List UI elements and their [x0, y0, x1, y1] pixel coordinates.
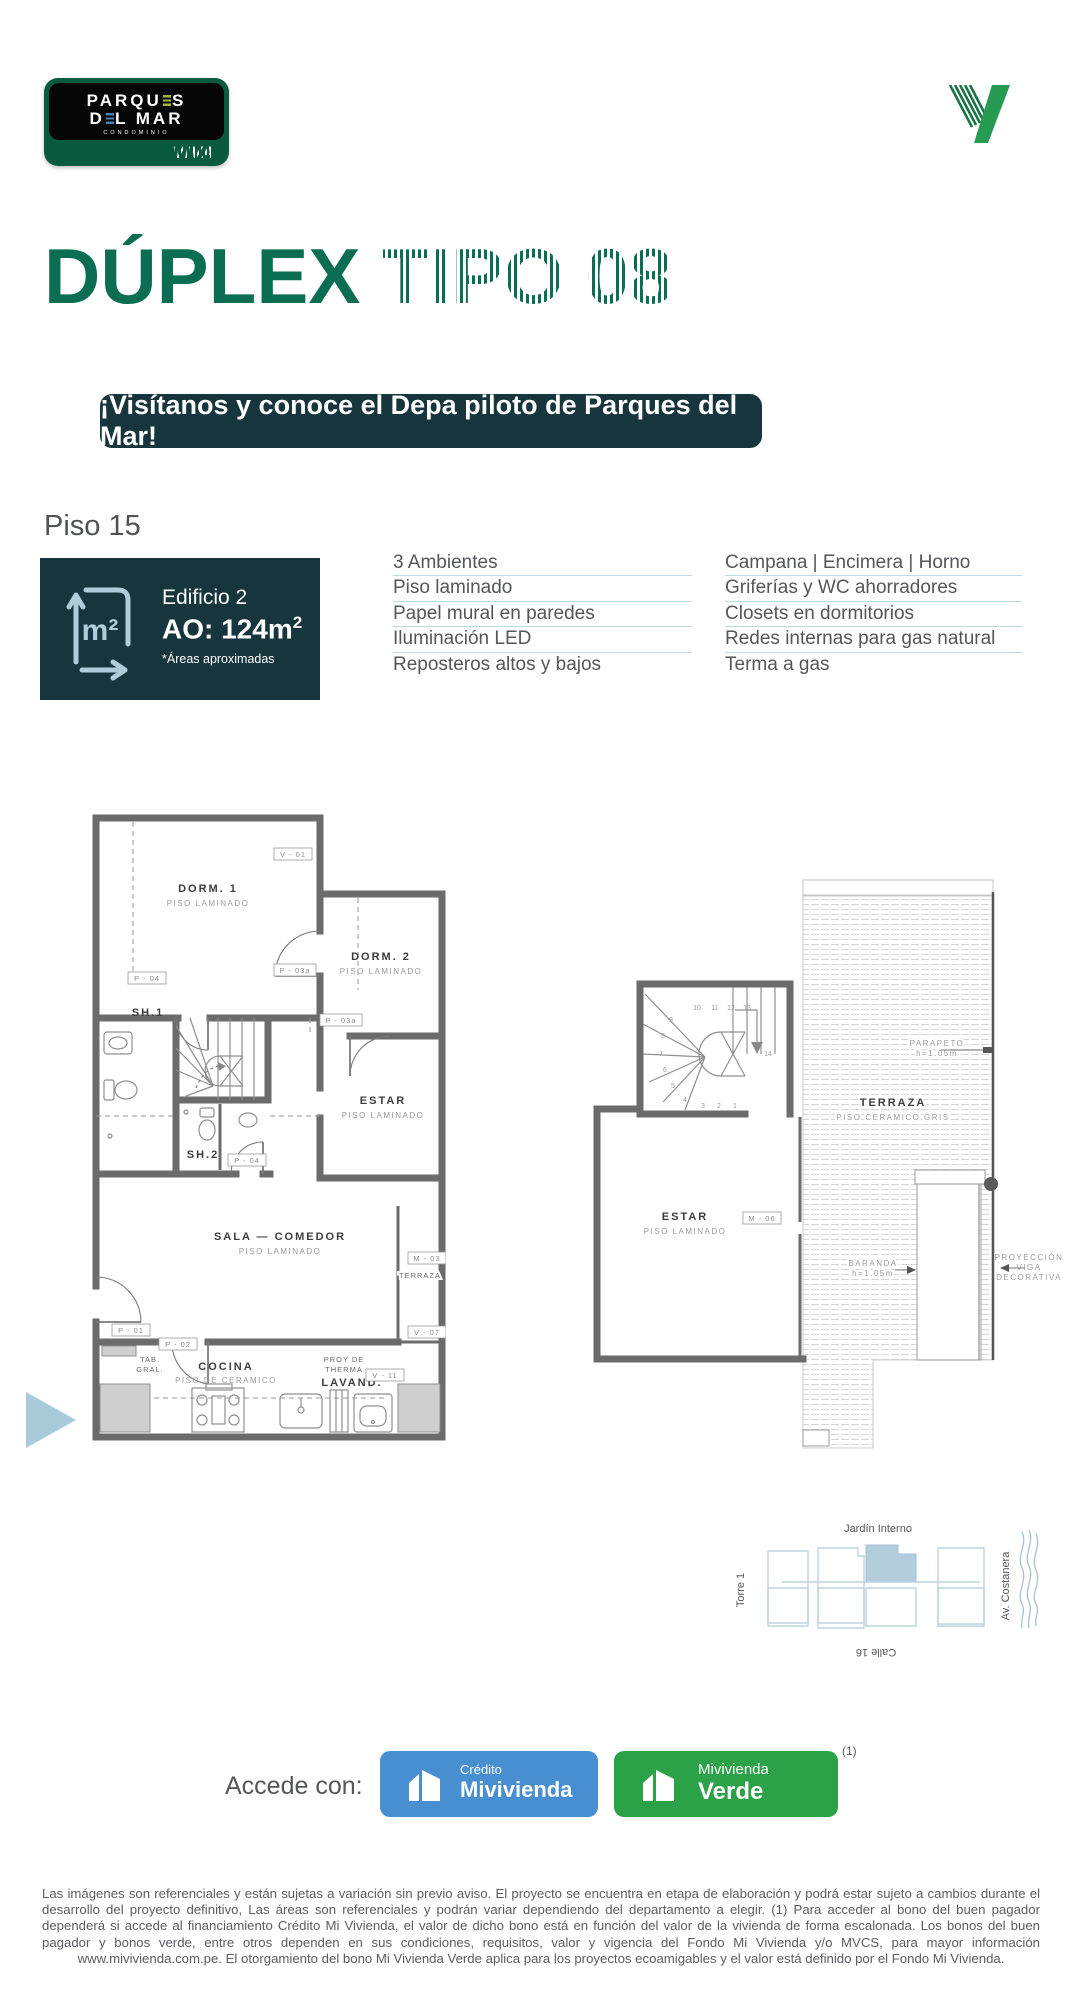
water-waves-icon — [1020, 1530, 1037, 1628]
svg-text:2: 2 — [717, 1103, 721, 1110]
button-label-bottom: Mivivienda — [460, 1777, 572, 1803]
proyeccion-viga-callout: PROYECCIÓN VIGA DECORATIVA — [995, 1253, 1064, 1282]
viva-v-icon — [948, 85, 1012, 143]
note-tablero: TAB. — [140, 1355, 160, 1364]
feature-item: Closets en dormitorios — [725, 602, 1022, 627]
tag-m06: M - 06 — [748, 1214, 775, 1223]
svg-text:P - 04: P - 04 — [234, 1156, 260, 1165]
floor-label: Piso 15 — [44, 510, 141, 543]
page-title: DÚPLEX TIPO 08 — [44, 234, 673, 318]
svg-text:5: 5 — [671, 1083, 675, 1090]
svg-text:6: 6 — [663, 1067, 667, 1074]
logo-condominio: CONDOMINIO — [49, 130, 224, 136]
room-sublabel: PISO LAMINADO — [167, 899, 250, 908]
flyer-page: PARQUS DL MAR CONDOMINIO VIVA DÚPLEX TIP… — [0, 0, 1081, 2001]
features-left: 3 Ambientes Piso laminado Papel mural en… — [393, 551, 692, 678]
svg-text:1: 1 — [733, 1103, 737, 1110]
column-dot — [984, 1177, 998, 1191]
area-note: *Áreas aproximadas — [162, 652, 275, 666]
walls — [597, 984, 803, 1359]
button-label-bottom: Verde — [698, 1778, 763, 1806]
svg-text:V - 07: V - 07 — [414, 1328, 440, 1337]
svg-text:P - 03a: P - 03a — [279, 966, 310, 975]
room-label-sh1: SH.1 — [132, 1007, 164, 1019]
room-label-dorm2: DORM. 2 — [351, 951, 411, 963]
map-label-jardin: Jardín Interno — [844, 1523, 912, 1535]
staircase — [176, 1018, 254, 1100]
svg-text:8: 8 — [661, 1033, 665, 1040]
svg-text:10: 10 — [693, 1005, 701, 1012]
room-label-cocina: COCINA — [198, 1361, 253, 1373]
stylized-e-icon — [106, 113, 115, 124]
m2-area-icon: m² — [66, 578, 138, 682]
building-footprints — [768, 1545, 984, 1628]
title-solid: DÚPLEX — [44, 232, 360, 320]
viva-wordmark: VIVA — [173, 143, 215, 163]
svg-text:BARANDA: BARANDA — [848, 1259, 897, 1268]
map-label-costanera: Av. Costanera — [1000, 1551, 1012, 1621]
svg-text:7: 7 — [659, 1051, 663, 1058]
svg-text:V - 01: V - 01 — [280, 850, 306, 859]
room-sublabel: PISO DE CERAMICO — [175, 1376, 277, 1385]
svg-text:14: 14 — [764, 1051, 772, 1058]
svg-text:GRAL.: GRAL. — [136, 1365, 164, 1374]
visit-banner: ¡Visítanos y conoce el Depa piloto de Pa… — [100, 394, 762, 448]
house-icon — [406, 1765, 448, 1803]
walls — [96, 818, 442, 1437]
room-sublabel: PISO LAMINADO — [239, 1247, 322, 1256]
room-label-terraza-small: TERRAZA — [399, 1271, 441, 1280]
room-label-estar: ESTAR — [662, 1211, 708, 1223]
staircase: 12 34 56 78 910 1112 1314 — [643, 987, 775, 1110]
svg-text:9: 9 — [669, 1017, 673, 1024]
accede-con-label: Accede con: — [225, 1772, 363, 1801]
logo-inner: PARQUS DL MAR CONDOMINIO — [49, 83, 224, 140]
logo-line2: DL MAR — [49, 110, 224, 127]
parques-del-mar-logo: PARQUS DL MAR CONDOMINIO VIVA — [44, 78, 229, 166]
room-sublabel: PISO LAMINADO — [342, 1111, 425, 1120]
feature-item: Redes internas para gas natural — [725, 627, 1022, 652]
feature-item: Reposteros altos y bajos — [393, 653, 692, 678]
svg-text:THERMA: THERMA — [325, 1365, 363, 1374]
room-label-dorm1: DORM. 1 — [178, 883, 238, 895]
svg-text:P - 02: P - 02 — [165, 1340, 191, 1349]
terrace-area — [803, 880, 998, 1448]
highlighted-unit — [866, 1545, 916, 1582]
feature-item: Terma a gas — [725, 653, 1022, 678]
svg-text:13: 13 — [743, 1005, 751, 1012]
map-label-calle16: Calle 16 — [856, 1646, 896, 1658]
svg-text:h=1.05m: h=1.05m — [852, 1269, 894, 1278]
site-location-map: Jardín Interno Torre 1 Av. Costanera Cal… — [560, 1518, 1060, 1763]
svg-text:12: 12 — [727, 1005, 735, 1012]
area-info-box: m² Edificio 2 AO: 124m2 *Áreas aproximad… — [40, 558, 320, 700]
room-sublabel: PISO LAMINADO — [644, 1227, 727, 1236]
room-label-sh2: SH.2 — [187, 1149, 219, 1161]
mivivienda-verde-button[interactable]: Mivivienda Verde — [614, 1751, 838, 1817]
legal-disclaimer: Las imágenes son referenciales y están s… — [42, 1886, 1040, 1967]
area-value: AO: 124m2 — [162, 613, 302, 645]
svg-text:M - 03: M - 03 — [413, 1254, 440, 1263]
title-striped: TIPO 08 — [382, 232, 672, 320]
svg-text:PARAPETO: PARAPETO — [910, 1039, 965, 1048]
room-label-terraza: TERRAZA — [860, 1097, 927, 1109]
floor-plan-upper: 12 34 56 78 910 1112 1314 TERRAZA PISO C… — [585, 862, 1081, 1462]
button-label-top: Crédito — [460, 1762, 502, 1777]
banner-text: ¡Visítanos y conoce el Depa piloto de Pa… — [100, 390, 762, 452]
svg-text:P - 03a: P - 03a — [325, 1016, 356, 1025]
button-label-top: Mivivienda — [698, 1761, 769, 1778]
credito-mivivienda-button[interactable]: Crédito Mivivienda — [380, 1751, 598, 1817]
features-right: Campana | Encimera | Horno Griferías y W… — [725, 551, 1022, 678]
svg-text:PROYECCIÓN: PROYECCIÓN — [995, 1253, 1064, 1262]
svg-text:P - 04: P - 04 — [134, 974, 160, 983]
feature-item: Campana | Encimera | Horno — [725, 551, 1022, 576]
svg-text:P - 01: P - 01 — [118, 1326, 144, 1335]
svg-text:11: 11 — [711, 1005, 718, 1012]
feature-item: Piso laminado — [393, 576, 692, 601]
house-icon — [640, 1765, 682, 1803]
floor-plan-lower: DORM. 1 PISO LAMINADO DORM. 2 PISO LAMIN… — [58, 786, 446, 1454]
feature-item: Griferías y WC ahorradores — [725, 576, 1022, 601]
note-proy-therma: PROY DE — [324, 1355, 365, 1364]
feature-item: 3 Ambientes — [393, 551, 692, 576]
logo-line1: PARQUS — [49, 92, 224, 109]
feature-item: Papel mural en paredes — [393, 602, 692, 627]
stylized-e-icon — [163, 95, 172, 106]
room-sublabel: PISO CERAMICO GRIS — [836, 1113, 949, 1122]
svg-text:4: 4 — [683, 1097, 687, 1104]
footnote-marker: (1) — [842, 1744, 857, 1758]
building-label: Edificio 2 — [162, 586, 247, 610]
room-label-estar: ESTAR — [360, 1095, 406, 1107]
room-label-sala: SALA — COMEDOR — [214, 1231, 346, 1243]
svg-text:m²: m² — [82, 614, 119, 647]
svg-text:V - 11: V - 11 — [372, 1371, 397, 1380]
feature-item: Iluminación LED — [393, 627, 692, 652]
svg-text:3: 3 — [701, 1103, 705, 1110]
room-sublabel: PISO LAMINADO — [340, 967, 423, 976]
svg-text:DECORATIVA: DECORATIVA — [996, 1273, 1062, 1282]
map-label-torre1: Torre 1 — [735, 1573, 747, 1607]
